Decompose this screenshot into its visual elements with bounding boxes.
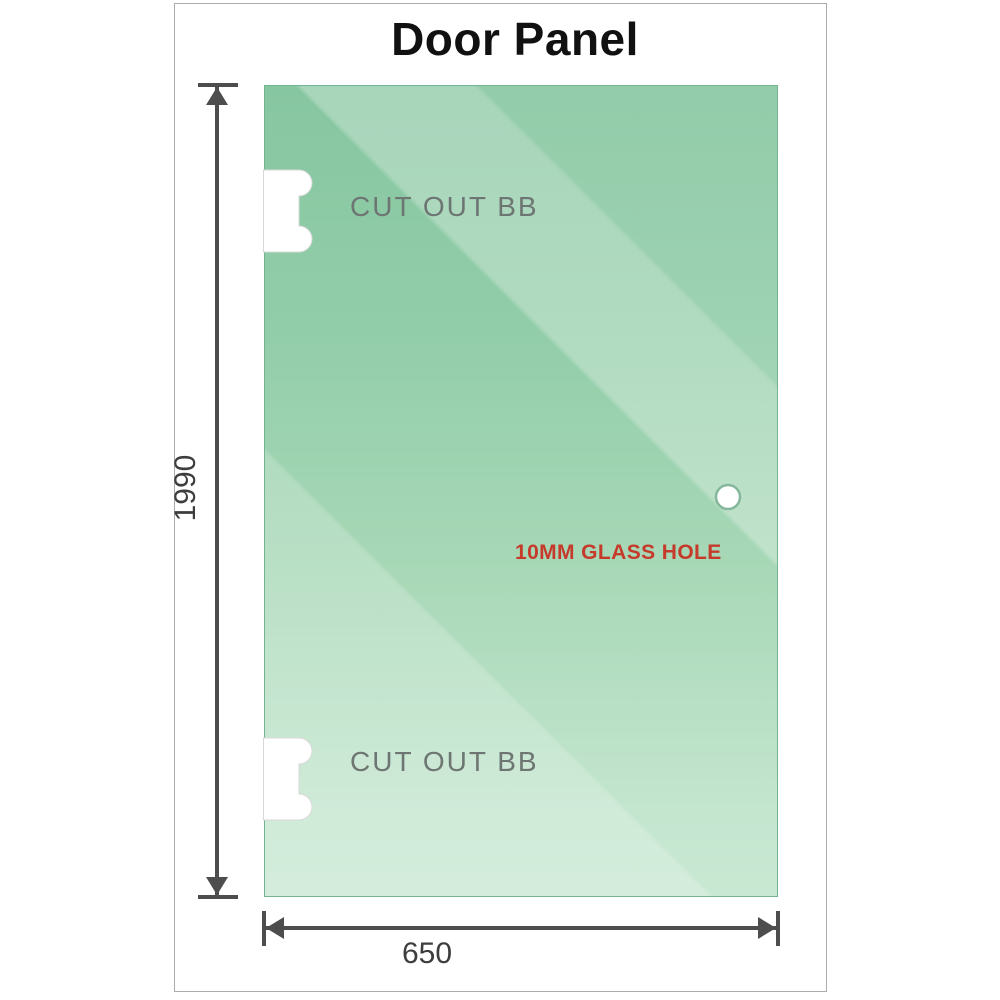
arrow-right-icon [758,917,776,939]
arrow-up-icon [206,87,228,105]
page-title: Door Panel [265,12,765,66]
cutout-top-label: CUT OUT BB [350,193,539,221]
hinge-cutout-top-shape [263,169,314,253]
width-dim-line [266,926,776,930]
height-dim-label: 1990 [171,448,201,528]
diagram-frame: Door Panel CUT OUT BB CUT OUT BB 10MM GL… [174,3,827,992]
height-dim-cap-bottom [198,895,238,899]
arrow-left-icon [266,917,284,939]
cutout-bottom-label: CUT OUT BB [350,748,539,776]
glass-hole-label: 10MM GLASS HOLE [515,542,722,564]
arrow-down-icon [206,877,228,895]
width-dim-cap-right [776,911,780,946]
width-dim-label: 650 [377,939,477,969]
height-dim-line [215,87,219,895]
hinge-cutout-bottom-shape [263,737,314,821]
glass-hole-shape [711,480,745,514]
